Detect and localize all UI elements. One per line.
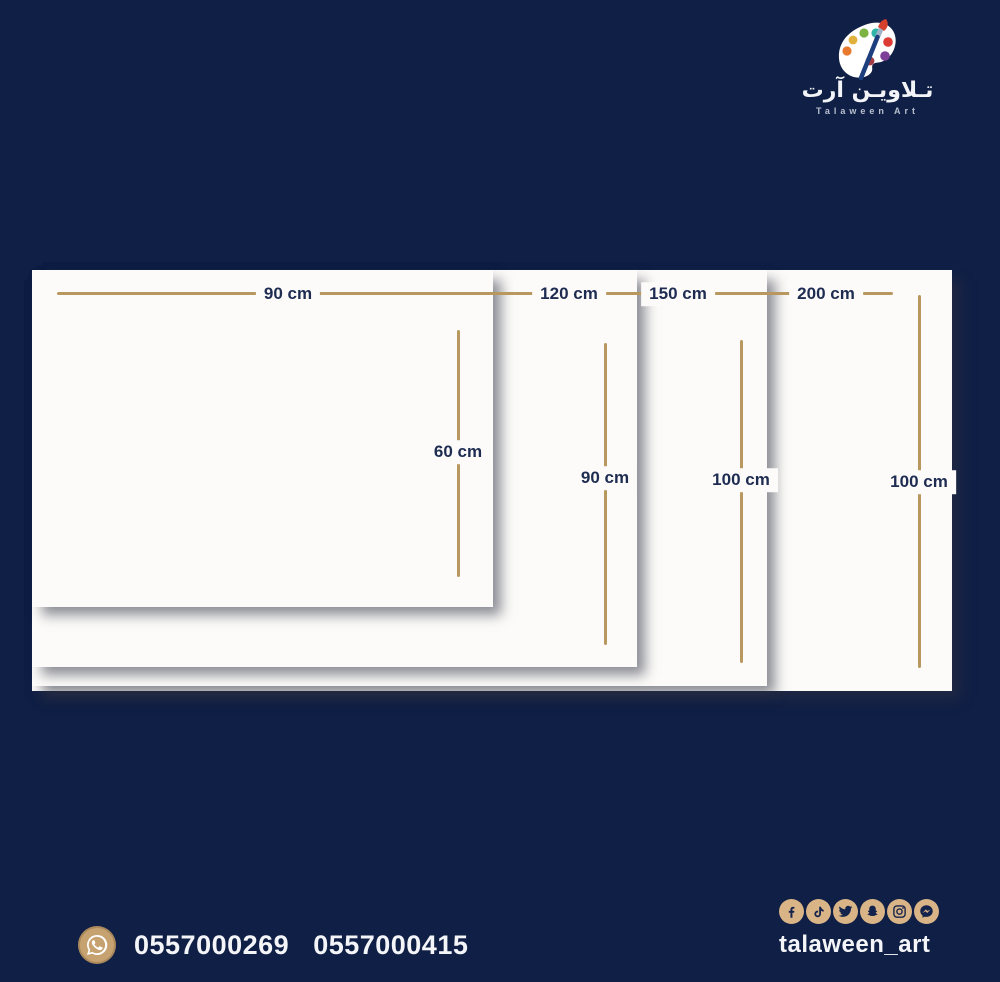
social-block: talaween_art [779, 899, 939, 959]
palette-icon [795, 18, 940, 82]
twitter-icon [833, 899, 858, 924]
phone-number-2: 0557000415 [313, 930, 468, 960]
height-label-panel-2: 90 cm [573, 466, 637, 490]
height-label-panel-3: 100 cm [704, 468, 778, 492]
instagram-icon [887, 899, 912, 924]
whatsapp-icon [78, 926, 116, 964]
width-label-panel-4: 200 cm [789, 282, 863, 306]
height-label-panel-1: 60 cm [426, 440, 490, 464]
social-icons [779, 899, 939, 924]
contact-row: 0557000269 0557000415 [78, 926, 468, 964]
instagram-handle: talaween_art [779, 931, 939, 959]
poster-background: تـلاويـن آرت Talaween Art 90 cm 120 cm 1… [0, 0, 1000, 982]
brand-logo: تـلاويـن آرت Talaween Art [795, 18, 940, 116]
canvas-panel-90x60 [32, 270, 493, 607]
brand-name-arabic: تـلاويـن آرت [795, 80, 940, 102]
snapchat-icon [860, 899, 885, 924]
width-label-panel-1: 90 cm [256, 282, 320, 306]
height-measure-line-panel-3 [740, 340, 743, 663]
tiktok-icon [806, 899, 831, 924]
phone-numbers: 0557000269 0557000415 [134, 930, 468, 961]
brand-name-english: Talaween Art [795, 106, 940, 116]
facebook-icon [779, 899, 804, 924]
height-label-panel-4: 100 cm [882, 470, 956, 494]
width-label-panel-3: 150 cm [641, 282, 715, 306]
phone-number-1: 0557000269 [134, 930, 289, 960]
messenger-icon [914, 899, 939, 924]
width-measure-line [57, 292, 893, 295]
width-label-panel-2: 120 cm [532, 282, 606, 306]
height-measure-line-panel-2 [604, 343, 607, 645]
